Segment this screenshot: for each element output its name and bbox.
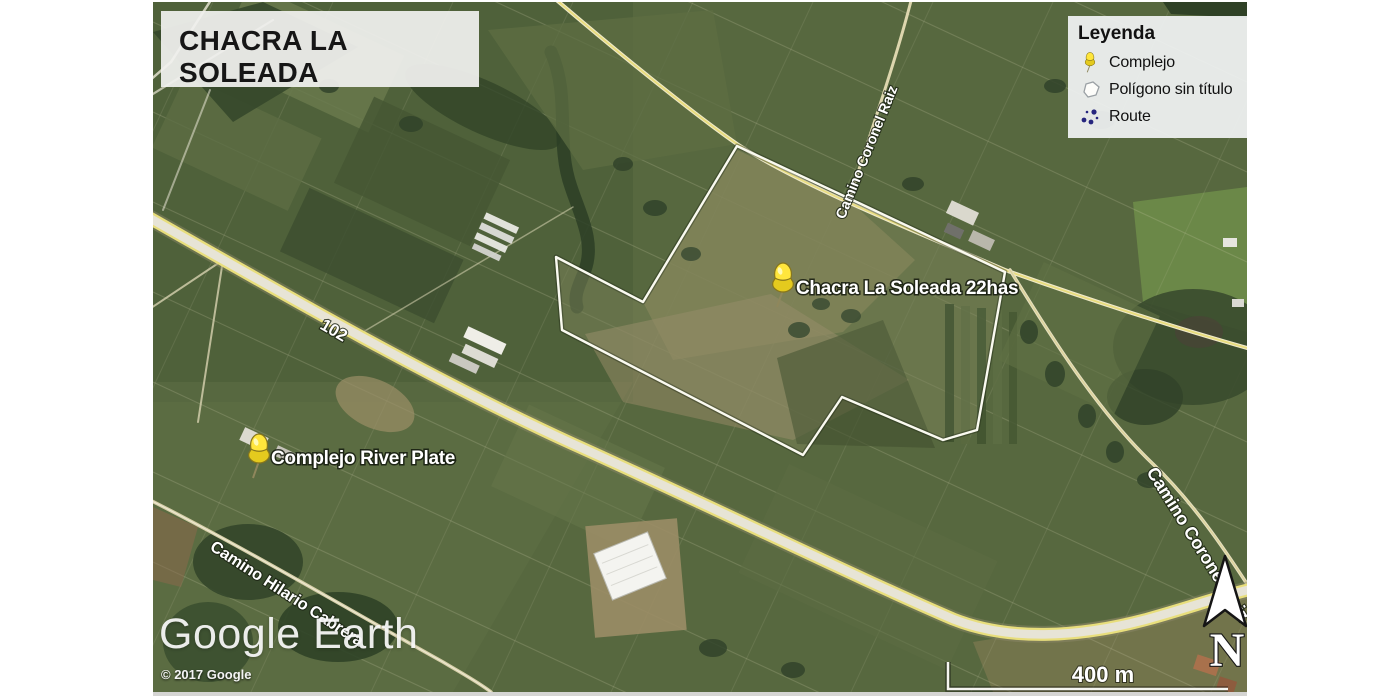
placemark-label-chacra: Chacra La Soleada 22has	[796, 278, 1018, 299]
map-title-box: CHACRA LA SOLEADA	[161, 11, 479, 87]
north-label: N	[1210, 624, 1245, 677]
legend-item-label: Complejo	[1109, 54, 1175, 72]
placemark-label-complejo: Complejo River Plate	[271, 448, 455, 469]
legend-panel: Leyenda Complejo	[1068, 16, 1247, 138]
polygon-icon	[1078, 80, 1102, 99]
legend-item-route: Route	[1078, 103, 1241, 130]
copyright-notice: © 2017 Google	[161, 667, 252, 682]
map-bottom-edge	[153, 692, 1247, 696]
legend-item-label: Polígono sin título	[1109, 81, 1232, 99]
legend-heading: Leyenda	[1078, 23, 1241, 45]
route-icon	[1078, 107, 1102, 126]
map-viewport[interactable]: Camino Coronel Raiz 102 Camino Hilario C…	[153, 2, 1247, 692]
screenshot-canvas: Camino Coronel Raiz 102 Camino Hilario C…	[0, 0, 1400, 700]
legend-item-poligono: Polígono sin título	[1078, 76, 1241, 103]
legend-item-complejo: Complejo	[1078, 49, 1241, 76]
google-earth-watermark: Google Earth	[159, 610, 418, 659]
map-title: CHACRA LA SOLEADA	[179, 25, 479, 89]
scale-label: 400 m	[1072, 662, 1134, 687]
legend-item-label: Route	[1109, 108, 1151, 126]
pushpin-icon	[1078, 50, 1102, 76]
